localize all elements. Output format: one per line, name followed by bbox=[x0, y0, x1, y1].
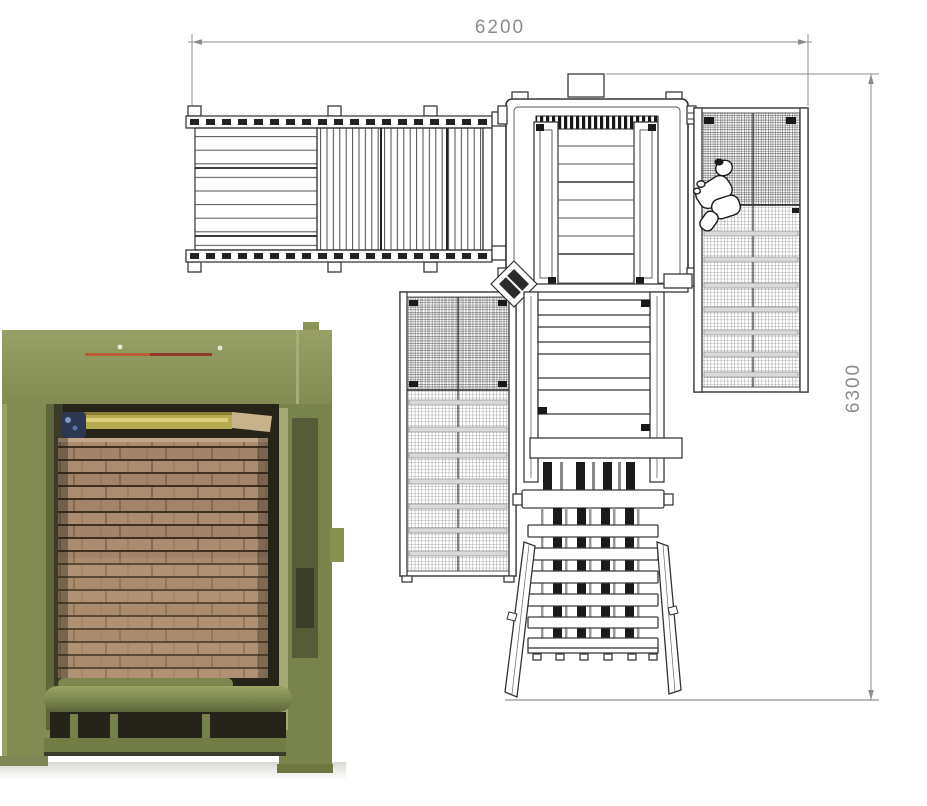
press-left-column bbox=[534, 122, 558, 286]
infeed-conveyor bbox=[186, 106, 506, 272]
press-machine-body bbox=[0, 322, 344, 773]
press-rear-box bbox=[568, 74, 604, 97]
slat-deck bbox=[195, 128, 317, 250]
bale-channel bbox=[524, 292, 682, 490]
press-photo bbox=[0, 318, 346, 796]
top-beam bbox=[2, 330, 332, 404]
safety-fence-left bbox=[400, 292, 516, 582]
dimension-width-label: 6200 bbox=[475, 17, 525, 38]
top-bump bbox=[303, 322, 319, 331]
base-beam bbox=[44, 738, 286, 754]
press-right-column bbox=[634, 122, 658, 286]
chute-right-wall bbox=[657, 542, 681, 694]
left-foot bbox=[0, 756, 48, 766]
blue-object bbox=[62, 412, 86, 438]
press-unit bbox=[498, 74, 696, 292]
front-roller bbox=[44, 686, 292, 712]
base-recess bbox=[50, 712, 286, 740]
bolt bbox=[118, 345, 123, 350]
accent-stripe bbox=[85, 353, 150, 356]
right-foot bbox=[277, 764, 333, 773]
discharge-chute bbox=[505, 490, 879, 700]
dimension-height-label: 6300 bbox=[843, 363, 864, 413]
timber-stack bbox=[58, 438, 268, 678]
page: 6200 6300 bbox=[0, 0, 927, 806]
safety-fence-right bbox=[694, 108, 808, 392]
operator-head-shadow bbox=[715, 159, 724, 166]
roller-section bbox=[317, 128, 483, 250]
bolt bbox=[218, 346, 223, 351]
dimension-width: 6200 bbox=[188, 17, 812, 114]
side-tab bbox=[330, 528, 344, 562]
